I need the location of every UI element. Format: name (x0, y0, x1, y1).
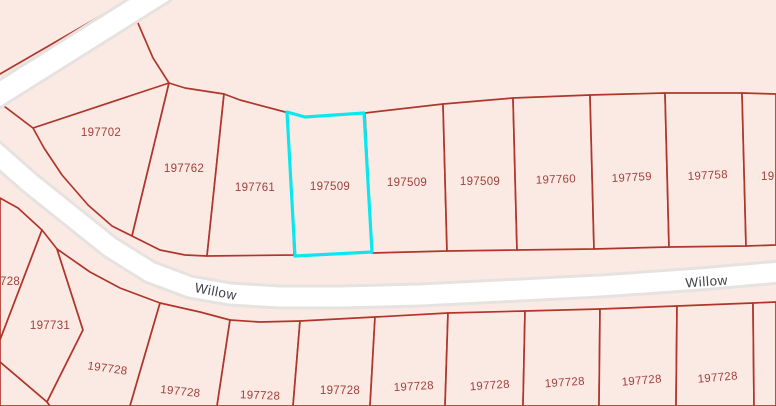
parcel-197728-9[interactable] (676, 303, 754, 406)
parcel-197760[interactable] (513, 95, 594, 250)
parcel-label: 197759 (611, 171, 652, 185)
parcel-label-clipped: 19 (761, 171, 774, 183)
parcel-label: 197760 (536, 173, 577, 186)
parcel-197728-7[interactable] (523, 309, 600, 406)
parcel-label: 197731 (30, 320, 70, 332)
parcel-label-clipped: 728 (0, 276, 20, 288)
parcel-label: 197509 (387, 177, 427, 189)
map-canvas[interactable]: 197702 197762 197761 197509 197509 19750… (0, 0, 776, 406)
parcel-197509-3[interactable] (443, 98, 517, 251)
parcel-label: 197728 (320, 385, 360, 397)
parcel-label: 197509 (460, 176, 500, 188)
map-viewport[interactable]: 197702 197762 197761 197509 197509 19750… (0, 0, 776, 406)
parcel-label: 197758 (687, 169, 728, 183)
parcel-label: 197761 (235, 182, 275, 194)
parcel-label: 197702 (81, 127, 121, 139)
parcel-197759[interactable] (590, 93, 669, 249)
parcel-label: 197762 (164, 163, 204, 175)
street-label-willow-right: Willow (685, 273, 729, 291)
parcel-label-selected: 197509 (310, 181, 350, 193)
parcel-label: 197728 (240, 389, 281, 402)
parcel-edge-right-bottom[interactable] (753, 302, 776, 406)
parcel-edge-right-top[interactable] (742, 93, 776, 246)
parcel-197728-8[interactable] (599, 306, 677, 406)
parcel-label: 197728 (393, 380, 434, 394)
